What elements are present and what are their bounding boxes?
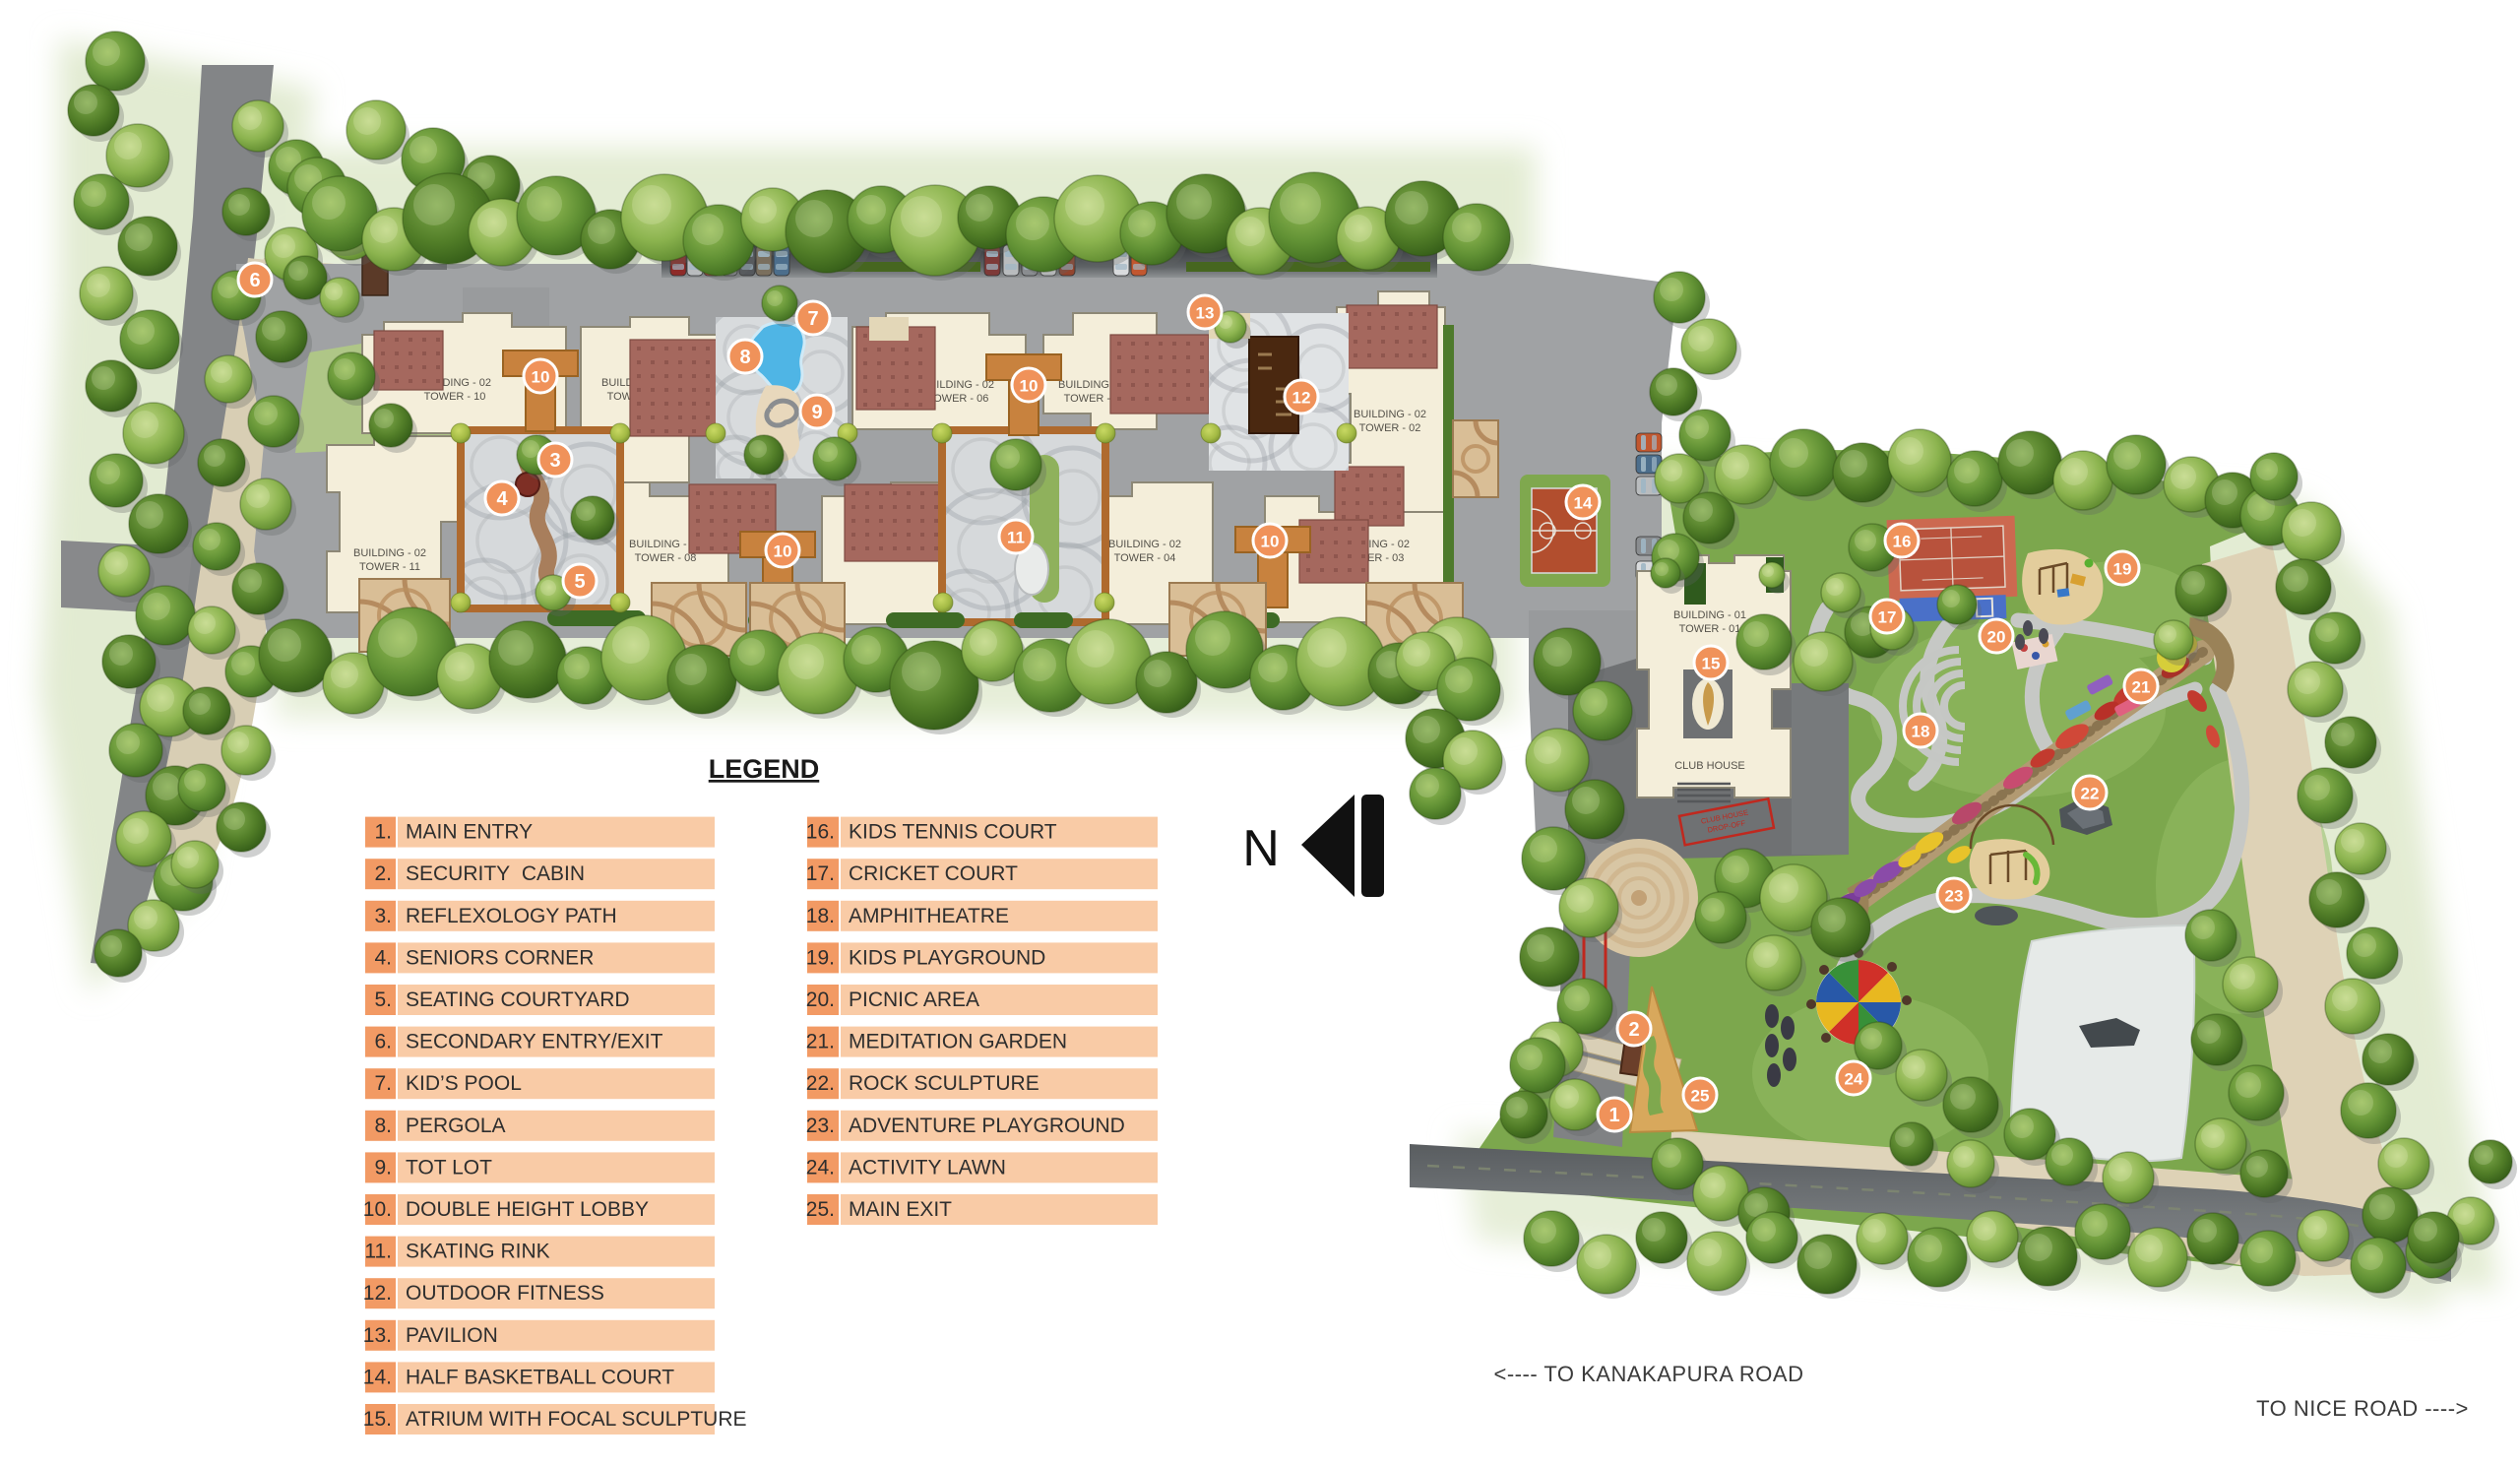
svg-text:PERGOLA: PERGOLA [406, 1115, 506, 1137]
svg-text:3.: 3. [374, 905, 392, 927]
svg-text:12: 12 [1292, 389, 1311, 408]
svg-text:19: 19 [2113, 560, 2132, 579]
svg-text:SENIORS CORNER: SENIORS CORNER [406, 946, 594, 969]
svg-text:21.: 21. [806, 1031, 835, 1053]
svg-text:3: 3 [549, 450, 560, 472]
svg-text:25: 25 [1691, 1087, 1710, 1106]
svg-text:<---- TO KANAKAPURA ROAD: <---- TO KANAKAPURA ROAD [1494, 1362, 1804, 1386]
svg-text:18.: 18. [806, 905, 835, 927]
svg-text:22: 22 [2081, 785, 2100, 803]
svg-text:2.: 2. [374, 862, 392, 885]
svg-text:KIDS TENNIS COURT: KIDS TENNIS COURT [849, 821, 1057, 844]
svg-text:PAVILION: PAVILION [406, 1324, 498, 1347]
svg-text:DOUBLE HEIGHT LOBBY: DOUBLE HEIGHT LOBBY [406, 1198, 649, 1221]
svg-text:TOWER - 10: TOWER - 10 [424, 391, 486, 403]
svg-text:8.: 8. [374, 1115, 392, 1137]
svg-text:16: 16 [1893, 533, 1912, 551]
svg-text:13.: 13. [363, 1324, 392, 1347]
svg-text:6.: 6. [374, 1031, 392, 1053]
svg-text:14: 14 [1574, 494, 1593, 513]
svg-text:N: N [1242, 820, 1280, 877]
svg-text:OUTDOOR FITNESS: OUTDOOR FITNESS [406, 1282, 604, 1305]
svg-text:TOWER - 01: TOWER - 01 [1679, 623, 1741, 635]
svg-text:18: 18 [1912, 723, 1930, 741]
svg-text:BUILDING - 02: BUILDING - 02 [1108, 539, 1181, 550]
svg-text:7.: 7. [374, 1072, 392, 1095]
svg-text:17: 17 [1878, 608, 1897, 627]
svg-text:6: 6 [249, 270, 260, 291]
svg-text:LEGEND: LEGEND [709, 754, 820, 784]
svg-text:REFLEXOLOGY PATH: REFLEXOLOGY PATH [406, 905, 617, 927]
svg-text:23: 23 [1945, 887, 1964, 906]
svg-text:22.: 22. [806, 1072, 835, 1095]
svg-text:TOWER - 08: TOWER - 08 [635, 552, 697, 564]
svg-text:5.: 5. [374, 988, 392, 1011]
svg-text:5: 5 [574, 571, 585, 593]
svg-text:MAIN ENTRY: MAIN ENTRY [406, 821, 533, 844]
svg-text:11: 11 [1007, 529, 1025, 547]
svg-text:14.: 14. [363, 1366, 392, 1388]
svg-text:2: 2 [1628, 1019, 1639, 1041]
svg-text:17.: 17. [806, 862, 835, 885]
svg-text:SEATING COURTYARD: SEATING COURTYARD [406, 988, 630, 1011]
svg-text:9.: 9. [374, 1156, 392, 1179]
svg-text:ACTIVITY LAWN: ACTIVITY LAWN [849, 1156, 1006, 1179]
svg-text:24: 24 [1845, 1070, 1863, 1089]
svg-text:BUILDING - 01: BUILDING - 01 [1673, 609, 1746, 621]
svg-text:PICNIC AREA: PICNIC AREA [849, 988, 979, 1011]
svg-text:20.: 20. [806, 988, 835, 1011]
svg-text:TOT LOT: TOT LOT [406, 1156, 492, 1179]
svg-text:MAIN EXIT: MAIN EXIT [849, 1198, 952, 1221]
svg-text:10: 10 [1020, 377, 1039, 396]
svg-text:BUILDING - 02: BUILDING - 02 [353, 547, 426, 559]
svg-text:12.: 12. [363, 1282, 392, 1305]
svg-text:TOWER - 04: TOWER - 04 [1114, 552, 1176, 564]
svg-text:19.: 19. [806, 946, 835, 969]
svg-text:ATRIUM WITH FOCAL SCULPTURE: ATRIUM WITH FOCAL SCULPTURE [406, 1408, 747, 1431]
svg-text:11.: 11. [364, 1241, 392, 1263]
svg-text:10.: 10. [363, 1198, 392, 1221]
svg-text:13: 13 [1196, 304, 1215, 323]
svg-text:4.: 4. [374, 946, 392, 969]
svg-text:24.: 24. [806, 1156, 835, 1179]
svg-text:MEDITATION GARDEN: MEDITATION GARDEN [849, 1031, 1067, 1053]
svg-text:16.: 16. [806, 821, 835, 844]
svg-text:TO NICE ROAD ---->: TO NICE ROAD ----> [2256, 1396, 2469, 1421]
svg-text:TOWER - 02: TOWER - 02 [1359, 422, 1421, 434]
svg-text:10: 10 [1261, 533, 1280, 551]
svg-text:CRICKET COURT: CRICKET COURT [849, 862, 1018, 885]
svg-text:25.: 25. [806, 1198, 835, 1221]
svg-text:9: 9 [811, 402, 822, 423]
svg-text:7: 7 [807, 308, 818, 330]
svg-text:8: 8 [739, 347, 750, 368]
svg-text:HALF BASKETBALL COURT: HALF BASKETBALL COURT [406, 1366, 674, 1388]
svg-text:15: 15 [1702, 655, 1721, 673]
svg-text:15.: 15. [363, 1408, 392, 1431]
svg-text:SECONDARY ENTRY/EXIT: SECONDARY ENTRY/EXIT [406, 1031, 663, 1053]
svg-text:KID’S POOL: KID’S POOL [406, 1072, 522, 1095]
svg-text:4: 4 [496, 488, 508, 510]
svg-text:ADVENTURE PLAYGROUND: ADVENTURE PLAYGROUND [849, 1115, 1125, 1137]
svg-text:ROCK SCULPTURE: ROCK SCULPTURE [849, 1072, 1039, 1095]
svg-text:AMPHITHEATRE: AMPHITHEATRE [849, 905, 1009, 927]
svg-text:SECURITY CABIN: SECURITY CABIN [406, 862, 585, 885]
svg-text:23.: 23. [806, 1115, 835, 1137]
svg-text:SKATING RINK: SKATING RINK [406, 1241, 550, 1263]
svg-text:21: 21 [2132, 678, 2151, 697]
svg-text:BUILDING - 02: BUILDING - 02 [1354, 409, 1426, 420]
svg-text:TOWER - 11: TOWER - 11 [359, 561, 420, 573]
svg-text:10: 10 [532, 368, 550, 387]
svg-text:1: 1 [1608, 1105, 1619, 1126]
svg-text:KIDS PLAYGROUND: KIDS PLAYGROUND [849, 946, 1045, 969]
svg-text:20: 20 [1987, 628, 2006, 647]
svg-text:TOWER - 06: TOWER - 06 [927, 393, 989, 405]
svg-text:10: 10 [774, 542, 792, 561]
svg-text:1.: 1. [374, 821, 392, 844]
svg-text:CLUB HOUSE: CLUB HOUSE [1674, 760, 1745, 772]
